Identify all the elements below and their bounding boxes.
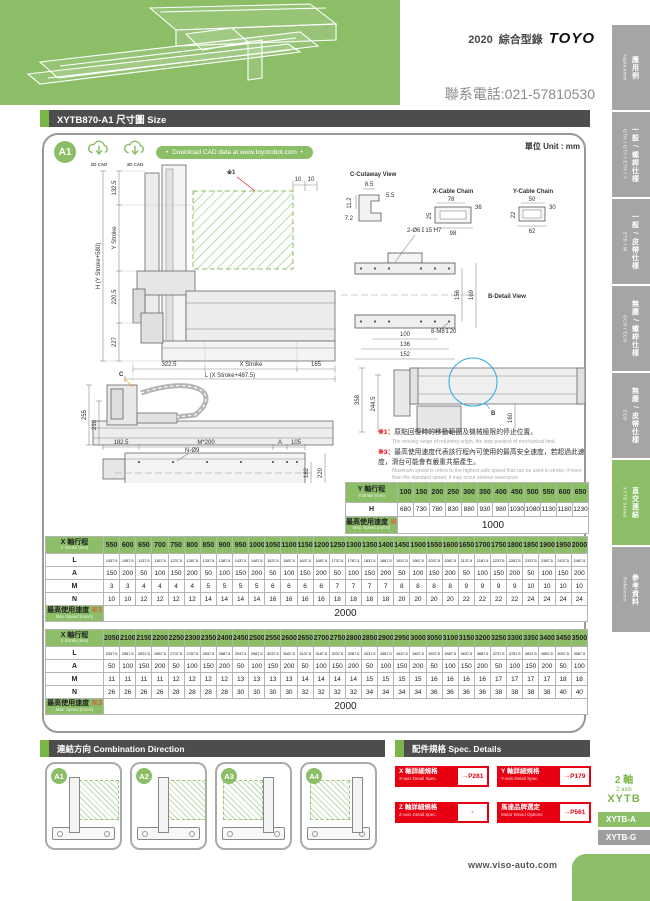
table-cell: 17 xyxy=(507,673,523,686)
dim-a-top: A xyxy=(278,440,282,446)
product-illustration xyxy=(0,0,400,105)
table-cell: 50 xyxy=(362,660,378,673)
table-cell: 16 xyxy=(281,593,297,606)
stroke-value: 550 xyxy=(104,537,120,554)
table-cell: 1937.5 xyxy=(394,554,410,567)
series-tab-xytb-g[interactable]: XYTB-G xyxy=(598,830,650,845)
table-cell: 1080 xyxy=(525,503,541,517)
sidebar-tab-label-zh: 參考資料 xyxy=(630,574,640,606)
row-label: N xyxy=(46,686,104,699)
combination-option-a4: A4 xyxy=(300,762,377,850)
table-cell: 7 xyxy=(378,580,394,593)
stroke-value: 1000 xyxy=(249,537,265,554)
table-cell: 14 xyxy=(216,593,232,606)
spec-label-zh: X 軸詳細規格 xyxy=(399,768,456,776)
table-cell: 18 xyxy=(329,593,345,606)
table-cell: 17 xyxy=(539,673,555,686)
stroke-value: 650 xyxy=(572,483,588,503)
spec-page-link[interactable]: →P561 xyxy=(560,804,589,821)
stroke-value: 950 xyxy=(233,537,249,554)
table-cell: 3237.5 xyxy=(329,647,345,660)
table-cell: 200 xyxy=(539,660,555,673)
brand-year: 2020 xyxy=(468,34,492,46)
stroke-value: 2150 xyxy=(136,630,152,647)
table-cell: 11 xyxy=(104,673,120,686)
table-cell: 8 xyxy=(410,580,426,593)
side-view-machine xyxy=(93,385,333,445)
spec-label-zh: Y 軸詳細規格 xyxy=(501,768,558,776)
table-cell: 50 xyxy=(136,567,152,580)
stroke-value: 3400 xyxy=(539,630,555,647)
table-cell: 24 xyxy=(523,593,539,606)
spec-page-link[interactable]: →P281 xyxy=(458,768,487,785)
y-axis-schematic xyxy=(352,777,363,833)
table-cell: 13 xyxy=(265,673,281,686)
table-cell: 3087.5 xyxy=(281,647,297,660)
table-cell: 28 xyxy=(216,686,232,699)
dim-160: 160 xyxy=(508,412,514,423)
stroke-value: 1450 xyxy=(394,537,410,554)
moving-range-hatch xyxy=(310,780,350,820)
sidebar-tab-gth-gty-eth-y[interactable]: GTH / GTY / ETH / Y一般 / 螺桿仕樣 xyxy=(612,112,650,197)
table-cell: 150 xyxy=(523,660,539,673)
stroke-value: 1800 xyxy=(507,537,523,554)
series-name: XYTB xyxy=(600,793,648,806)
series-axis-en: 2 axis xyxy=(600,787,648,794)
stroke-value: 400 xyxy=(493,483,509,503)
table-cell: 3637.5 xyxy=(458,647,474,660)
max-speed-value: 2000 xyxy=(104,606,588,622)
dim-220-5: 220.5 xyxy=(112,289,118,305)
table-cell: 13 xyxy=(281,673,297,686)
table-cell: 12 xyxy=(200,673,216,686)
x-axis-schematic xyxy=(222,827,285,840)
footnote-zh: ※3：最高使用速度代表該行程內可使用的最高安全速度，若超過此速度，滑台可能會有嚴… xyxy=(378,448,588,467)
sidebar-tab-label-zh: 直交連結 xyxy=(630,487,640,519)
stroke-value: 800 xyxy=(184,537,200,554)
stroke-value: 100 xyxy=(398,483,414,503)
table-cell: 730 xyxy=(413,503,429,517)
table-cell: 16 xyxy=(426,673,442,686)
footnote-en: Maximum speed is refers to the highest s… xyxy=(392,468,588,481)
table-cell: 100 xyxy=(313,660,329,673)
row-label: A xyxy=(46,567,104,580)
table-row-N: N262626262828282830303030323232323434343… xyxy=(46,686,588,699)
spec-label-zh: 馬達品牌選定 xyxy=(501,804,558,812)
footnote-ref: ※1： xyxy=(378,429,394,436)
row-label: H xyxy=(346,503,398,517)
stroke-value: 1500 xyxy=(410,537,426,554)
table-cell: 3537.5 xyxy=(426,647,442,660)
corner-decoration xyxy=(572,854,650,901)
table-cell: 18 xyxy=(555,673,571,686)
table-cell: 3 xyxy=(120,580,136,593)
table-cell: 100 xyxy=(249,660,265,673)
spec-page-link[interactable]: →P179 xyxy=(560,768,589,785)
stroke-header-row: Y 軸行程YStroke (mm)10015020025030035040045… xyxy=(346,483,589,503)
table-cell: 1180 xyxy=(557,503,573,517)
stroke-value: 3150 xyxy=(458,630,474,647)
table-cell: 18 xyxy=(362,593,378,606)
moving-range-hatch xyxy=(193,191,293,269)
moving-range-hatch xyxy=(223,780,263,820)
sidebar-tab-label-zh: 應用例 xyxy=(630,56,640,80)
spec-title-en: Spec. Details xyxy=(448,744,501,754)
dim-220: 220 xyxy=(318,467,324,478)
dim-36: 36 xyxy=(475,205,482,211)
stroke-value: 1200 xyxy=(313,537,329,554)
dim-8-5: 8.5 xyxy=(365,182,374,188)
dim-100: 100 xyxy=(400,332,411,338)
sidebar-tab-label-zh: 無塵 / 皮帶仕樣 xyxy=(630,387,640,444)
table-cell: 17 xyxy=(523,673,539,686)
table-cell: 2587.5 xyxy=(120,647,136,660)
spec-page-link[interactable]: - xyxy=(458,804,487,821)
dim-5-5: 5.5 xyxy=(386,193,395,199)
spec-label-en: Y-axis Detail Spec. xyxy=(501,776,558,781)
sidebar-tab-ecb[interactable]: ECB無塵 / 皮帶仕樣 xyxy=(612,373,650,458)
table-cell: 50 xyxy=(491,660,507,673)
table-cell: 1130 xyxy=(541,503,557,517)
dim-11-2: 11.2 xyxy=(347,197,353,209)
table-cell: 3687.5 xyxy=(474,647,490,660)
x-stroke-table-1-mount: X 軸行程X Stroke (mm)5506006507007508008509… xyxy=(45,536,588,622)
stroke-value: 1100 xyxy=(281,537,297,554)
table-cell: 100 xyxy=(474,567,490,580)
table-cell: 3037.5 xyxy=(265,647,281,660)
stroke-value: 750 xyxy=(168,537,184,554)
row-label: M xyxy=(46,673,104,686)
stroke-value: 2800 xyxy=(345,630,361,647)
stroke-header-row: X 軸行程X Stroke (mm)5506006507007508008509… xyxy=(46,537,588,554)
table-cell: 50 xyxy=(426,660,442,673)
dim-136: 136 xyxy=(400,342,411,348)
sidebar-tab-xytb-series[interactable]: XYTB Series直交連結 xyxy=(612,460,650,545)
dim-30: 30 xyxy=(549,205,556,211)
footnote-en: The moving range of returning origin, th… xyxy=(392,439,588,446)
table-cell: 2637.5 xyxy=(136,647,152,660)
dim-322-5: 322.5 xyxy=(161,362,177,368)
table-cell: 10 xyxy=(104,593,120,606)
stroke-value: 3300 xyxy=(507,630,523,647)
table-cell: 30 xyxy=(233,686,249,699)
combination-badge: A4 xyxy=(306,768,322,784)
table-cell: 150 xyxy=(233,567,249,580)
table-cell: 3187.5 xyxy=(313,647,329,660)
green-accent xyxy=(40,740,49,757)
sidebar-tab-application[interactable]: Application應用例 xyxy=(612,25,650,110)
table-cell: 34 xyxy=(410,686,426,699)
table-cell: 36 xyxy=(442,686,458,699)
combination-option-a3: A3 xyxy=(215,762,292,850)
table-cell: 26 xyxy=(120,686,136,699)
x-axis-schematic xyxy=(52,827,115,840)
dim-x-stroke: X Stroke xyxy=(239,362,263,368)
table-cell: 34 xyxy=(362,686,378,699)
table-cell: 1637.5 xyxy=(297,554,313,567)
sidebar-tab-label-en: ETB / M xyxy=(623,232,628,251)
table-cell: 680 xyxy=(398,503,414,517)
table-cell: 6 xyxy=(297,580,313,593)
table-header-label: 最高使用速度 ※3Max. Speed (mm/s) xyxy=(46,699,104,715)
table-cell: 15 xyxy=(394,673,410,686)
table-cell: 100 xyxy=(216,567,232,580)
dim-78: 78 xyxy=(448,197,455,203)
spec-item-motor-brand-options: 馬達品牌選定Motor Brand Options→P561 xyxy=(497,802,591,823)
dim-50: 50 xyxy=(529,197,536,203)
table-row-L: L1037.51087.51137.51187.51237.51287.5133… xyxy=(46,554,588,567)
combination-title-zh: 連結方向 xyxy=(57,743,91,755)
table-cell: 3987.5 xyxy=(571,647,587,660)
table-cell: 32 xyxy=(297,686,313,699)
dim-165: 165 xyxy=(311,362,322,368)
series-axis-zh: 2 軸 xyxy=(600,775,648,787)
dim-l-total: L (X Stroke+487.5) xyxy=(205,373,255,379)
table-cell: 9 xyxy=(491,580,507,593)
table-cell: 34 xyxy=(394,686,410,699)
stroke-value: 900 xyxy=(216,537,232,554)
stroke-value: 450 xyxy=(509,483,525,503)
spec-label-en: Z-axis Detail Spec. xyxy=(399,812,456,817)
table-cell: 38 xyxy=(491,686,507,699)
table-cell: 20 xyxy=(410,593,426,606)
table-cell: 24 xyxy=(571,593,587,606)
stroke-header-row: X 軸行程X Stroke (mm)2050210021502200225023… xyxy=(46,630,588,647)
x-stroke-table-2-mount: X 軸行程X Stroke (mm)2050210021502200225023… xyxy=(45,629,588,715)
table-cell: 1387.5 xyxy=(216,554,232,567)
row-label: M xyxy=(46,580,104,593)
table-cell: 3137.5 xyxy=(297,647,313,660)
table-cell: 18 xyxy=(345,593,361,606)
table-cell: 100 xyxy=(410,567,426,580)
stroke-value: 2100 xyxy=(120,630,136,647)
table-cell: 12 xyxy=(184,673,200,686)
sidebar-tab-label-en: GTH / GTY / ETH / Y xyxy=(623,129,628,179)
sidebar-tab-gch-ech[interactable]: GCH / ECH無塵 / 螺桿仕樣 xyxy=(612,286,650,371)
stroke-value: 1400 xyxy=(378,537,394,554)
sidebar-tab-label-zh: 一般 / 皮帶仕樣 xyxy=(630,213,640,270)
label-n-o9: N-Ø9 xyxy=(185,448,200,454)
table-cell: 26 xyxy=(152,686,168,699)
table-cell: 13 xyxy=(233,673,249,686)
table-cell: 17 xyxy=(491,673,507,686)
stroke-value: 600 xyxy=(557,483,573,503)
table-cell: 4 xyxy=(152,580,168,593)
brand-catalog: 綜合型錄 xyxy=(499,31,543,47)
footnotes: ※1：原點回復時的移動範圍及機械極限的停止位置。The moving range… xyxy=(378,428,588,484)
sidebar-tab-etb-m[interactable]: ETB / M一般 / 皮帶仕樣 xyxy=(612,199,650,284)
table-row-M: M3344445555666677778888999910101010 xyxy=(46,580,588,593)
ref-b: B xyxy=(491,411,496,417)
table-cell: 10 xyxy=(571,580,587,593)
sidebar-tab-label-en: XYTB Series xyxy=(623,487,628,518)
contact-phone: 聯系電話:021-57810530 xyxy=(445,84,595,104)
table-cell: 3837.5 xyxy=(523,647,539,660)
table-cell: 2087.5 xyxy=(442,554,458,567)
table-cell: 2937.5 xyxy=(233,647,249,660)
table-cell: 14 xyxy=(200,593,216,606)
table-cell: 50 xyxy=(329,567,345,580)
table-cell: 24 xyxy=(539,593,555,606)
table-cell: 38 xyxy=(539,686,555,699)
table-cell: 32 xyxy=(345,686,361,699)
table-cell: 28 xyxy=(184,686,200,699)
dim-182-5: 182.5 xyxy=(113,440,129,446)
table-cell: 3787.5 xyxy=(507,647,523,660)
dim-7-2: 7.2 xyxy=(345,216,354,222)
table-cell: 1237.5 xyxy=(168,554,184,567)
y-chain-title: Y-Cable Chain xyxy=(513,189,554,195)
dim-10-right: 10 xyxy=(308,177,315,183)
table-cell: 32 xyxy=(313,686,329,699)
dim-105: 105 xyxy=(291,440,302,446)
table-cell: 7 xyxy=(362,580,378,593)
dim-h-total: H (Y Stroke+580) xyxy=(96,243,102,289)
table-cell: 34 xyxy=(378,686,394,699)
table-row-L: L2537.52587.52637.52687.52737.52787.5283… xyxy=(46,647,588,660)
table-cell: 6 xyxy=(265,580,281,593)
stroke-value: 1300 xyxy=(345,537,361,554)
table-cell: 1287.5 xyxy=(184,554,200,567)
table-cell: 1137.5 xyxy=(136,554,152,567)
table-cell: 100 xyxy=(442,660,458,673)
table-cell: 150 xyxy=(265,660,281,673)
table-cell: 980 xyxy=(493,503,509,517)
table-cell: 200 xyxy=(313,567,329,580)
table-cell: 2037.5 xyxy=(426,554,442,567)
spec-item-x-axis-detail-spec: X 軸詳細規格X-axis Detail Spec.→P281 xyxy=(395,766,489,787)
series-tab-xytb-a[interactable]: XYTB-A xyxy=(598,812,650,827)
table-cell: 18 xyxy=(571,673,587,686)
table-cell: 2837.5 xyxy=(200,647,216,660)
row-label: N xyxy=(46,593,104,606)
y-stroke-table-mount: Y 軸行程YStroke (mm)10015020025030035040045… xyxy=(345,482,589,534)
table-cell: 100 xyxy=(345,567,361,580)
download-cad-pill[interactable]: Download CAD data at www.toyorobot.com xyxy=(156,146,313,159)
table-cell: 50 xyxy=(233,660,249,673)
brand-row: 2020 綜合型錄 TOYO xyxy=(468,30,595,47)
table-cell: 40 xyxy=(555,686,571,699)
table-cell: 150 xyxy=(394,660,410,673)
table-cell: 20 xyxy=(394,593,410,606)
table-cell: 150 xyxy=(329,660,345,673)
footnote-zh: ※1：原點回復時的移動範圍及機械極限的停止位置。 xyxy=(378,428,588,438)
sidebar-tab-reference[interactable]: Reference參考資料 xyxy=(612,547,650,632)
stroke-value: 650 xyxy=(136,537,152,554)
max-speed-row: 最高使用速度 ※3Max. Speed (mm/s)2000 xyxy=(46,606,588,622)
x-chain-title: X-Cable Chain xyxy=(433,189,474,195)
table-cell: 11 xyxy=(120,673,136,686)
spec-label-en: X-axis Detail Spec. xyxy=(399,776,456,781)
table-cell: 2287.5 xyxy=(507,554,523,567)
stroke-value: 1700 xyxy=(474,537,490,554)
table-cell: 1687.5 xyxy=(313,554,329,567)
stroke-value: 2450 xyxy=(233,630,249,647)
dim-98: 98 xyxy=(450,231,457,237)
table-cell: 28 xyxy=(168,686,184,699)
table-cell: 150 xyxy=(426,567,442,580)
spec-item-y-axis-detail-spec: Y 軸詳細規格Y-axis Detail Spec.→P179 xyxy=(497,766,591,787)
stroke-value: 3250 xyxy=(491,630,507,647)
stroke-value: 2700 xyxy=(313,630,329,647)
table-cell: 1737.5 xyxy=(329,554,345,567)
table-row-A: A501001502005010015020050100150200501001… xyxy=(46,660,588,673)
dim-182: 182 xyxy=(304,467,310,478)
table-cell: 20 xyxy=(442,593,458,606)
stroke-value: 200 xyxy=(429,483,445,503)
table-cell: 150 xyxy=(200,660,216,673)
table-cell: 22 xyxy=(474,593,490,606)
table-cell: 11 xyxy=(136,673,152,686)
table-cell: 26 xyxy=(104,686,120,699)
stroke-value: 300 xyxy=(461,483,477,503)
table-cell: 100 xyxy=(184,660,200,673)
combination-cards: A1A2A3A4 xyxy=(45,762,377,850)
table-cell: 50 xyxy=(458,567,474,580)
stroke-value: 3500 xyxy=(571,630,587,647)
table-cell: 150 xyxy=(136,660,152,673)
max-speed-row: 最高使用速度 ※3Max. Speed (mm/s)1000 xyxy=(346,517,589,534)
table-cell: 12 xyxy=(216,673,232,686)
table-row-N: N101012121212141414141616161618181818202… xyxy=(46,593,588,606)
table-cell: 16 xyxy=(265,593,281,606)
table-cell: 930 xyxy=(477,503,493,517)
b-detail-sketch xyxy=(355,253,455,328)
spec-items: X 軸詳細規格X-axis Detail Spec.→P281Y 軸詳細規格Y-… xyxy=(395,766,591,823)
table-cell: 150 xyxy=(491,567,507,580)
max-speed-value: 1000 xyxy=(398,517,589,534)
table-row-M: M111111111212121213131313141414141515151… xyxy=(46,673,588,686)
table-row-A: A150200501001502005010015020050100150200… xyxy=(46,567,588,580)
table-cell: 2137.5 xyxy=(458,554,474,567)
table-cell: 9 xyxy=(474,580,490,593)
stroke-value: 2500 xyxy=(249,630,265,647)
table-cell: 1187.5 xyxy=(152,554,168,567)
stroke-value: 150 xyxy=(413,483,429,503)
footnote-ref: ※3： xyxy=(378,449,394,456)
table-cell: 6 xyxy=(281,580,297,593)
table-cell: 1437.5 xyxy=(233,554,249,567)
table-cell: 12 xyxy=(168,673,184,686)
cutaway-title: C-Cutaway View xyxy=(350,172,397,178)
table-cell: 2887.5 xyxy=(216,647,232,660)
dim-22: 22 xyxy=(511,211,517,218)
table-cell: 28 xyxy=(200,686,216,699)
table-cell: 14 xyxy=(249,593,265,606)
row-label: A xyxy=(46,660,104,673)
table-cell: 200 xyxy=(152,660,168,673)
table-cell: 11 xyxy=(152,673,168,686)
table-cell: 13 xyxy=(249,673,265,686)
table-cell: 10 xyxy=(523,580,539,593)
table-header-label: 最高使用速度 ※3Max. Speed (mm/s) xyxy=(46,606,104,622)
table-cell: 12 xyxy=(152,593,168,606)
table-cell: 14 xyxy=(345,673,361,686)
green-accent xyxy=(395,740,404,757)
table-cell: 3887.5 xyxy=(539,647,555,660)
table-cell: 50 xyxy=(265,567,281,580)
table-cell: 100 xyxy=(281,567,297,580)
table-cell: 4 xyxy=(136,580,152,593)
table-cell: 15 xyxy=(378,673,394,686)
table-cell: 3737.5 xyxy=(491,647,507,660)
table-cell: 1837.5 xyxy=(362,554,378,567)
stroke-value: 1950 xyxy=(555,537,571,554)
combination-title-en: Combination Direction xyxy=(93,744,184,754)
stroke-value: 1650 xyxy=(458,537,474,554)
table-cell: 18 xyxy=(378,593,394,606)
moving-range-hatch xyxy=(166,780,206,820)
